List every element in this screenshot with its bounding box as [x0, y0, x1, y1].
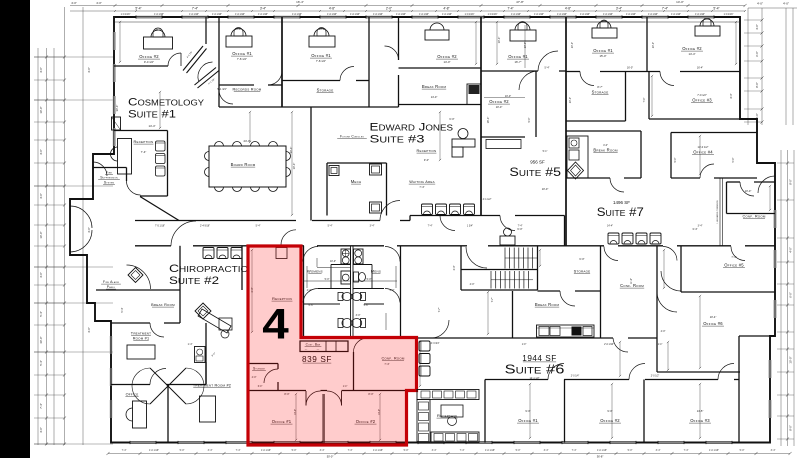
svg-text:14'-1": 14'-1": [318, 27, 325, 31]
svg-text:3'-4": 3'-4": [698, 225, 703, 228]
svg-text:7'-4": 7'-4": [428, 225, 433, 228]
svg-text:1'-0 1/16": 1'-0 1/16": [235, 14, 245, 16]
svg-text:30'-0": 30'-0": [39, 336, 43, 343]
svg-text:9'-0": 9'-0": [674, 157, 677, 162]
svg-text:4: 4: [262, 301, 289, 349]
svg-text:7'-0 1/2": 7'-0 1/2": [697, 93, 707, 97]
svg-text:Office #2: Office #2: [489, 99, 509, 104]
svg-text:3'-4": 3'-4": [320, 449, 325, 452]
svg-text:10'-0": 10'-0": [292, 163, 296, 170]
svg-text:Suite #1: Suite #1: [128, 108, 176, 120]
svg-text:4'-0": 4'-0": [783, 2, 789, 6]
svg-text:5'-0": 5'-0": [292, 449, 297, 452]
svg-text:Office #2: Office #2: [682, 46, 702, 51]
svg-text:6'-0": 6'-0": [517, 227, 522, 231]
svg-text:7'-4": 7'-4": [348, 449, 353, 452]
svg-text:Office #1: Office #1: [518, 418, 538, 423]
svg-text:Break Room: Break Room: [593, 148, 618, 153]
svg-text:7'-4": 7'-4": [122, 449, 127, 452]
svg-text:47'-8": 47'-8": [516, 0, 524, 4]
svg-text:7'-0": 7'-0": [643, 97, 646, 102]
svg-text:16'-4": 16'-4": [154, 28, 161, 32]
svg-text:6'-0": 6'-0": [755, 51, 759, 57]
svg-text:4'-4": 4'-4": [307, 289, 312, 292]
svg-text:6'-0": 6'-0": [789, 292, 793, 298]
svg-text:3'-4": 3'-4": [260, 6, 266, 10]
svg-text:15'-0": 15'-0": [599, 54, 606, 58]
svg-text:14'-0": 14'-0": [431, 95, 438, 99]
svg-text:1'-0 1/16": 1'-0 1/16": [511, 14, 521, 16]
svg-text:2'-0 1/2": 2'-0 1/2": [651, 376, 660, 378]
svg-text:Womens: Womens: [307, 270, 323, 274]
svg-text:3'-4": 3'-4": [656, 449, 661, 452]
svg-text:7'-4": 7'-4": [419, 185, 424, 189]
svg-text:7'-8 1/2": 7'-8 1/2": [237, 57, 247, 61]
svg-text:Panel: Panel: [107, 285, 116, 289]
svg-text:1'-4": 1'-4": [188, 343, 193, 346]
svg-text:Office #4: Office #4: [693, 150, 713, 155]
svg-text:Office #2: Office #2: [600, 418, 620, 423]
svg-text:4'-0": 4'-0": [96, 1, 102, 5]
svg-text:8'-0": 8'-0": [789, 179, 793, 185]
svg-text:956 SF: 956 SF: [530, 160, 545, 165]
svg-text:Edward Jones: Edward Jones: [370, 121, 454, 133]
svg-text:1'-0 1/16": 1'-0 1/16": [626, 14, 636, 16]
svg-text:Mech: Mech: [351, 179, 362, 184]
svg-text:1'-0 1/16": 1'-0 1/16": [557, 14, 567, 16]
svg-text:1'-0 1/16": 1'-0 1/16": [724, 14, 734, 16]
svg-text:Office #6: Office #6: [703, 321, 723, 326]
svg-text:Storage: Storage: [592, 90, 609, 95]
svg-text:1'-0 1/16": 1'-0 1/16": [709, 449, 719, 452]
svg-text:1'-0 1/16": 1'-0 1/16": [373, 14, 383, 16]
svg-text:4'-8": 4'-8": [565, 6, 571, 10]
svg-text:7'-4": 7'-4": [684, 449, 689, 452]
svg-text:5'-4": 5'-4": [120, 307, 124, 312]
svg-text:Chiropractic: Chiropractic: [169, 263, 248, 275]
svg-text:50'-0": 50'-0": [327, 455, 334, 458]
svg-text:4'-0": 4'-0": [755, 24, 759, 30]
svg-text:7'-4": 7'-4": [662, 6, 668, 10]
svg-text:36'-8": 36'-8": [597, 455, 604, 458]
svg-text:10'-0": 10'-0": [330, 260, 336, 263]
svg-text:9'-0": 9'-0": [607, 409, 612, 413]
svg-text:Suite #7: Suite #7: [597, 205, 644, 219]
svg-text:1'-0 1/16": 1'-0 1/16": [149, 449, 159, 452]
svg-text:8'-7": 8'-7": [597, 85, 602, 89]
svg-text:3'-4": 3'-4": [432, 449, 437, 452]
svg-text:1'-0 1/16": 1'-0 1/16": [396, 14, 406, 16]
svg-text:1'-0 1/16": 1'-0 1/16": [442, 14, 452, 16]
svg-text:10'-0": 10'-0": [524, 42, 527, 48]
svg-text:14'-1": 14'-1": [234, 27, 241, 31]
svg-text:7'-4": 7'-4": [460, 449, 465, 452]
svg-text:16'-4": 16'-4": [697, 67, 703, 70]
svg-text:Reception: Reception: [134, 140, 154, 144]
svg-text:4'-0": 4'-0": [470, 283, 475, 286]
svg-text:2'-0 1/4": 2'-0 1/4": [571, 376, 580, 378]
svg-text:5'-0": 5'-0": [404, 449, 409, 452]
svg-text:5'-0": 5'-0": [516, 449, 521, 452]
svg-text:2'-0": 2'-0": [386, 6, 392, 10]
svg-text:11'-0": 11'-0": [630, 278, 633, 284]
svg-text:10'-0": 10'-0": [39, 231, 43, 238]
svg-text:Suite #2: Suite #2: [169, 275, 219, 287]
svg-text:14'-0 1/2": 14'-0 1/2": [698, 145, 709, 149]
svg-text:1'-0 1/16": 1'-0 1/16": [465, 14, 475, 16]
svg-text:5'-0": 5'-0": [740, 449, 745, 452]
svg-text:1'-0 1/16": 1'-0 1/16": [121, 14, 131, 16]
svg-text:4'-0": 4'-0": [789, 247, 793, 253]
svg-text:4'-8": 4'-8": [443, 6, 449, 10]
svg-text:16'-4": 16'-4": [296, 0, 304, 4]
svg-text:1'-0 1/16": 1'-0 1/16": [488, 14, 498, 16]
svg-text:4'-0": 4'-0": [757, 2, 763, 6]
svg-text:7'-7": 7'-7": [438, 307, 441, 312]
svg-text:1'-0 1/16": 1'-0 1/16": [597, 449, 607, 452]
svg-text:Break Room: Break Room: [422, 84, 447, 89]
svg-text:16'-0": 16'-0": [486, 117, 490, 124]
svg-text:5'-6": 5'-6": [364, 304, 369, 307]
svg-text:9'-0": 9'-0": [525, 409, 530, 413]
svg-text:Suppression: Suppression: [100, 176, 118, 180]
svg-text:7'-5 1/16": 7'-5 1/16": [155, 225, 165, 228]
svg-text:Treatment Room #2: Treatment Room #2: [193, 384, 231, 388]
svg-text:5'-0": 5'-0": [628, 449, 633, 452]
svg-text:3'-4": 3'-4": [771, 449, 776, 452]
svg-text:6'-0": 6'-0": [755, 113, 759, 119]
svg-text:Waiting Area: Waiting Area: [409, 180, 435, 184]
svg-text:4'-0": 4'-0": [71, 1, 77, 5]
svg-text:1'-4": 1'-4": [658, 344, 663, 346]
svg-text:Office: Office: [126, 393, 139, 397]
svg-text:10'-0": 10'-0": [39, 106, 43, 113]
svg-text:4'-0": 4'-0": [39, 193, 43, 199]
svg-text:3'-4": 3'-4": [208, 449, 213, 452]
svg-text:Suite #6: Suite #6: [505, 362, 565, 377]
svg-text:4'-0": 4'-0": [661, 330, 666, 333]
svg-text:Fire Alarm: Fire Alarm: [103, 280, 119, 284]
svg-text:1'-0 1/16": 1'-0 1/16": [671, 14, 681, 16]
svg-text:Break Room: Break Room: [535, 302, 560, 307]
svg-text:10'-0": 10'-0": [542, 187, 549, 191]
svg-text:10'-0": 10'-0": [789, 356, 793, 363]
svg-text:10'-0": 10'-0": [745, 189, 752, 193]
svg-text:30'-0": 30'-0": [115, 105, 119, 112]
svg-text:Board Room: Board Room: [231, 162, 256, 167]
svg-text:Treatment: Treatment: [131, 332, 151, 336]
svg-text:1'-0 1/16": 1'-0 1/16": [292, 14, 302, 16]
svg-text:1'-0": 1'-0": [522, 344, 527, 346]
svg-text:Office #1: Office #1: [232, 51, 252, 56]
svg-text:Conf. Room: Conf. Room: [742, 214, 765, 218]
svg-text:10'-0": 10'-0": [496, 105, 503, 109]
svg-text:Suite #5: Suite #5: [509, 167, 561, 179]
svg-text:5'-0": 5'-0": [367, 278, 372, 281]
svg-text:4'-3 3/4": 4'-3 3/4": [431, 342, 440, 345]
svg-text:4'-0": 4'-0": [39, 427, 43, 433]
svg-text:4'-1 1/2": 4'-1 1/2": [483, 198, 492, 201]
svg-text:5'-4": 5'-4": [39, 311, 43, 317]
svg-text:4'-0": 4'-0": [87, 227, 91, 233]
svg-text:Office #1: Office #1: [508, 54, 528, 59]
svg-text:14'-4": 14'-4": [607, 225, 613, 228]
svg-text:8'-0": 8'-0": [755, 82, 759, 88]
svg-text:Records Room: Records Room: [233, 88, 262, 92]
svg-text:7'-7": 7'-7": [491, 297, 494, 302]
svg-text:1'-0 1/16": 1'-0 1/16": [350, 14, 360, 16]
svg-text:Office #5: Office #5: [724, 263, 744, 268]
svg-text:5'-4": 5'-4": [39, 360, 43, 366]
svg-text:10'-0": 10'-0": [652, 42, 655, 48]
svg-text:1'-0 1/16": 1'-0 1/16": [648, 14, 658, 16]
svg-text:4'-0": 4'-0": [87, 67, 91, 73]
svg-text:2'-0 1/16": 2'-0 1/16": [604, 344, 614, 346]
svg-text:7'-4": 7'-4": [731, 255, 736, 259]
svg-text:Future Cubicles: Future Cubicles: [340, 135, 364, 139]
svg-text:Mens: Mens: [371, 270, 381, 274]
svg-text:4'-0": 4'-0": [87, 327, 91, 333]
svg-text:7'-4": 7'-4": [236, 449, 241, 452]
svg-text:3'-4": 3'-4": [544, 449, 549, 452]
svg-text:1'-0 1/16": 1'-0 1/16": [485, 449, 495, 452]
svg-text:14'-0": 14'-0": [676, 0, 684, 4]
svg-text:9'-0": 9'-0": [424, 158, 429, 162]
svg-text:Office #2: Office #2: [139, 54, 159, 59]
svg-text:4'-8": 4'-8": [329, 6, 335, 10]
svg-text:5'-4": 5'-4": [256, 225, 261, 228]
svg-text:2'-4 9/16": 2'-4 9/16": [200, 225, 210, 228]
svg-text:Cosmetology: Cosmetology: [128, 97, 205, 109]
svg-text:30'-0": 30'-0": [289, 147, 293, 154]
svg-text:4'-0": 4'-0": [39, 149, 43, 155]
svg-text:Reception: Reception: [437, 413, 457, 418]
svg-text:7'-4": 7'-4": [507, 6, 513, 10]
svg-text:5'-1": 5'-1": [543, 150, 548, 153]
svg-text:1 HR RATED CORRIDOR: 1 HR RATED CORRIDOR: [716, 200, 719, 224]
svg-text:1'-0 1/16": 1'-0 1/16": [534, 14, 544, 16]
svg-text:8'-0": 8'-0": [789, 425, 793, 431]
svg-text:1'-0 1/16": 1'-0 1/16": [695, 14, 705, 16]
svg-text:2'-0": 2'-0": [390, 289, 395, 292]
svg-text:1'-0 1/16": 1'-0 1/16": [258, 14, 268, 16]
svg-text:Office #1: Office #1: [593, 48, 613, 53]
svg-text:5'-4": 5'-4": [713, 6, 719, 10]
svg-text:5'-4": 5'-4": [328, 225, 333, 228]
svg-text:9'-0": 9'-0": [528, 117, 531, 122]
svg-text:1'-0 1/16": 1'-0 1/16": [419, 14, 429, 16]
svg-text:1'-0 1/16": 1'-0 1/16": [154, 14, 164, 16]
svg-text:7'-4": 7'-4": [141, 150, 147, 154]
svg-text:7'-8 1/2": 7'-8 1/2": [316, 59, 326, 63]
svg-text:14'-4": 14'-4": [688, 52, 695, 56]
svg-text:10'-0": 10'-0": [497, 37, 501, 44]
svg-text:4'-0": 4'-0": [603, 144, 608, 147]
svg-text:14'-4": 14'-4": [148, 124, 155, 128]
svg-text:Fire: Fire: [106, 171, 113, 175]
svg-text:Break Room: Break Room: [151, 303, 175, 307]
svg-text:8'-0": 8'-0": [730, 93, 733, 98]
svg-text:6'-0": 6'-0": [579, 257, 584, 261]
svg-text:3'-0": 3'-0": [356, 314, 361, 317]
svg-text:Office #2: Office #2: [437, 54, 457, 59]
svg-text:16'-7": 16'-7": [514, 60, 521, 64]
svg-text:6'-6": 6'-6": [309, 304, 314, 307]
svg-text:10'-0": 10'-0": [571, 42, 574, 48]
svg-text:1'-0 1/16": 1'-0 1/16": [580, 14, 590, 16]
svg-text:1'-0 1/16": 1'-0 1/16": [327, 14, 337, 16]
svg-text:Office #1: Office #1: [311, 53, 331, 58]
svg-text:16'-0": 16'-0": [627, 67, 633, 70]
svg-text:5'-0": 5'-0": [325, 278, 330, 281]
svg-text:9'-0 1/2": 9'-0 1/2": [144, 60, 154, 64]
svg-text:Storage: Storage: [574, 269, 591, 274]
svg-text:5'-4": 5'-4": [135, 6, 141, 10]
svg-text:6'-0": 6'-0": [449, 117, 454, 121]
svg-text:5'-0": 5'-0": [732, 157, 735, 162]
svg-text:7'-4": 7'-4": [192, 6, 198, 10]
svg-text:1 3/4": 1 3/4": [467, 225, 473, 228]
svg-text:3'-4": 3'-4": [370, 225, 375, 228]
svg-text:5'-0": 5'-0": [180, 449, 185, 452]
svg-text:3'-0": 3'-0": [453, 265, 456, 270]
svg-text:1'-0 1/16": 1'-0 1/16": [189, 14, 199, 16]
svg-text:10'-0": 10'-0": [569, 97, 572, 103]
svg-text:4'-0": 4'-0": [39, 272, 43, 278]
svg-text:System: System: [104, 181, 114, 185]
svg-text:7'-4": 7'-4": [39, 403, 43, 409]
svg-text:3'-4": 3'-4": [616, 6, 622, 10]
svg-text:5'-4": 5'-4": [545, 67, 550, 70]
svg-text:1'-0 1/16": 1'-0 1/16": [212, 14, 222, 16]
svg-text:14'-5": 14'-5": [697, 409, 704, 413]
svg-text:Office #3: Office #3: [692, 98, 712, 103]
svg-text:1'-0 1/16": 1'-0 1/16": [261, 449, 271, 452]
svg-text:7'-4": 7'-4": [572, 449, 577, 452]
svg-text:Room #1: Room #1: [133, 337, 150, 341]
svg-text:Suite #3: Suite #3: [370, 134, 425, 146]
svg-text:Reception: Reception: [417, 149, 437, 153]
svg-text:Office #3: Office #3: [690, 418, 710, 423]
svg-text:10'-4": 10'-4": [710, 315, 717, 319]
svg-text:3'-4": 3'-4": [692, 227, 697, 231]
svg-text:1'-0 1/16": 1'-0 1/16": [373, 449, 383, 452]
svg-text:4'-0": 4'-0": [39, 67, 43, 73]
svg-text:14'-0": 14'-0": [443, 60, 450, 64]
svg-text:Storage: Storage: [317, 88, 334, 93]
svg-text:1'-0 1/16": 1'-0 1/16": [603, 14, 613, 16]
